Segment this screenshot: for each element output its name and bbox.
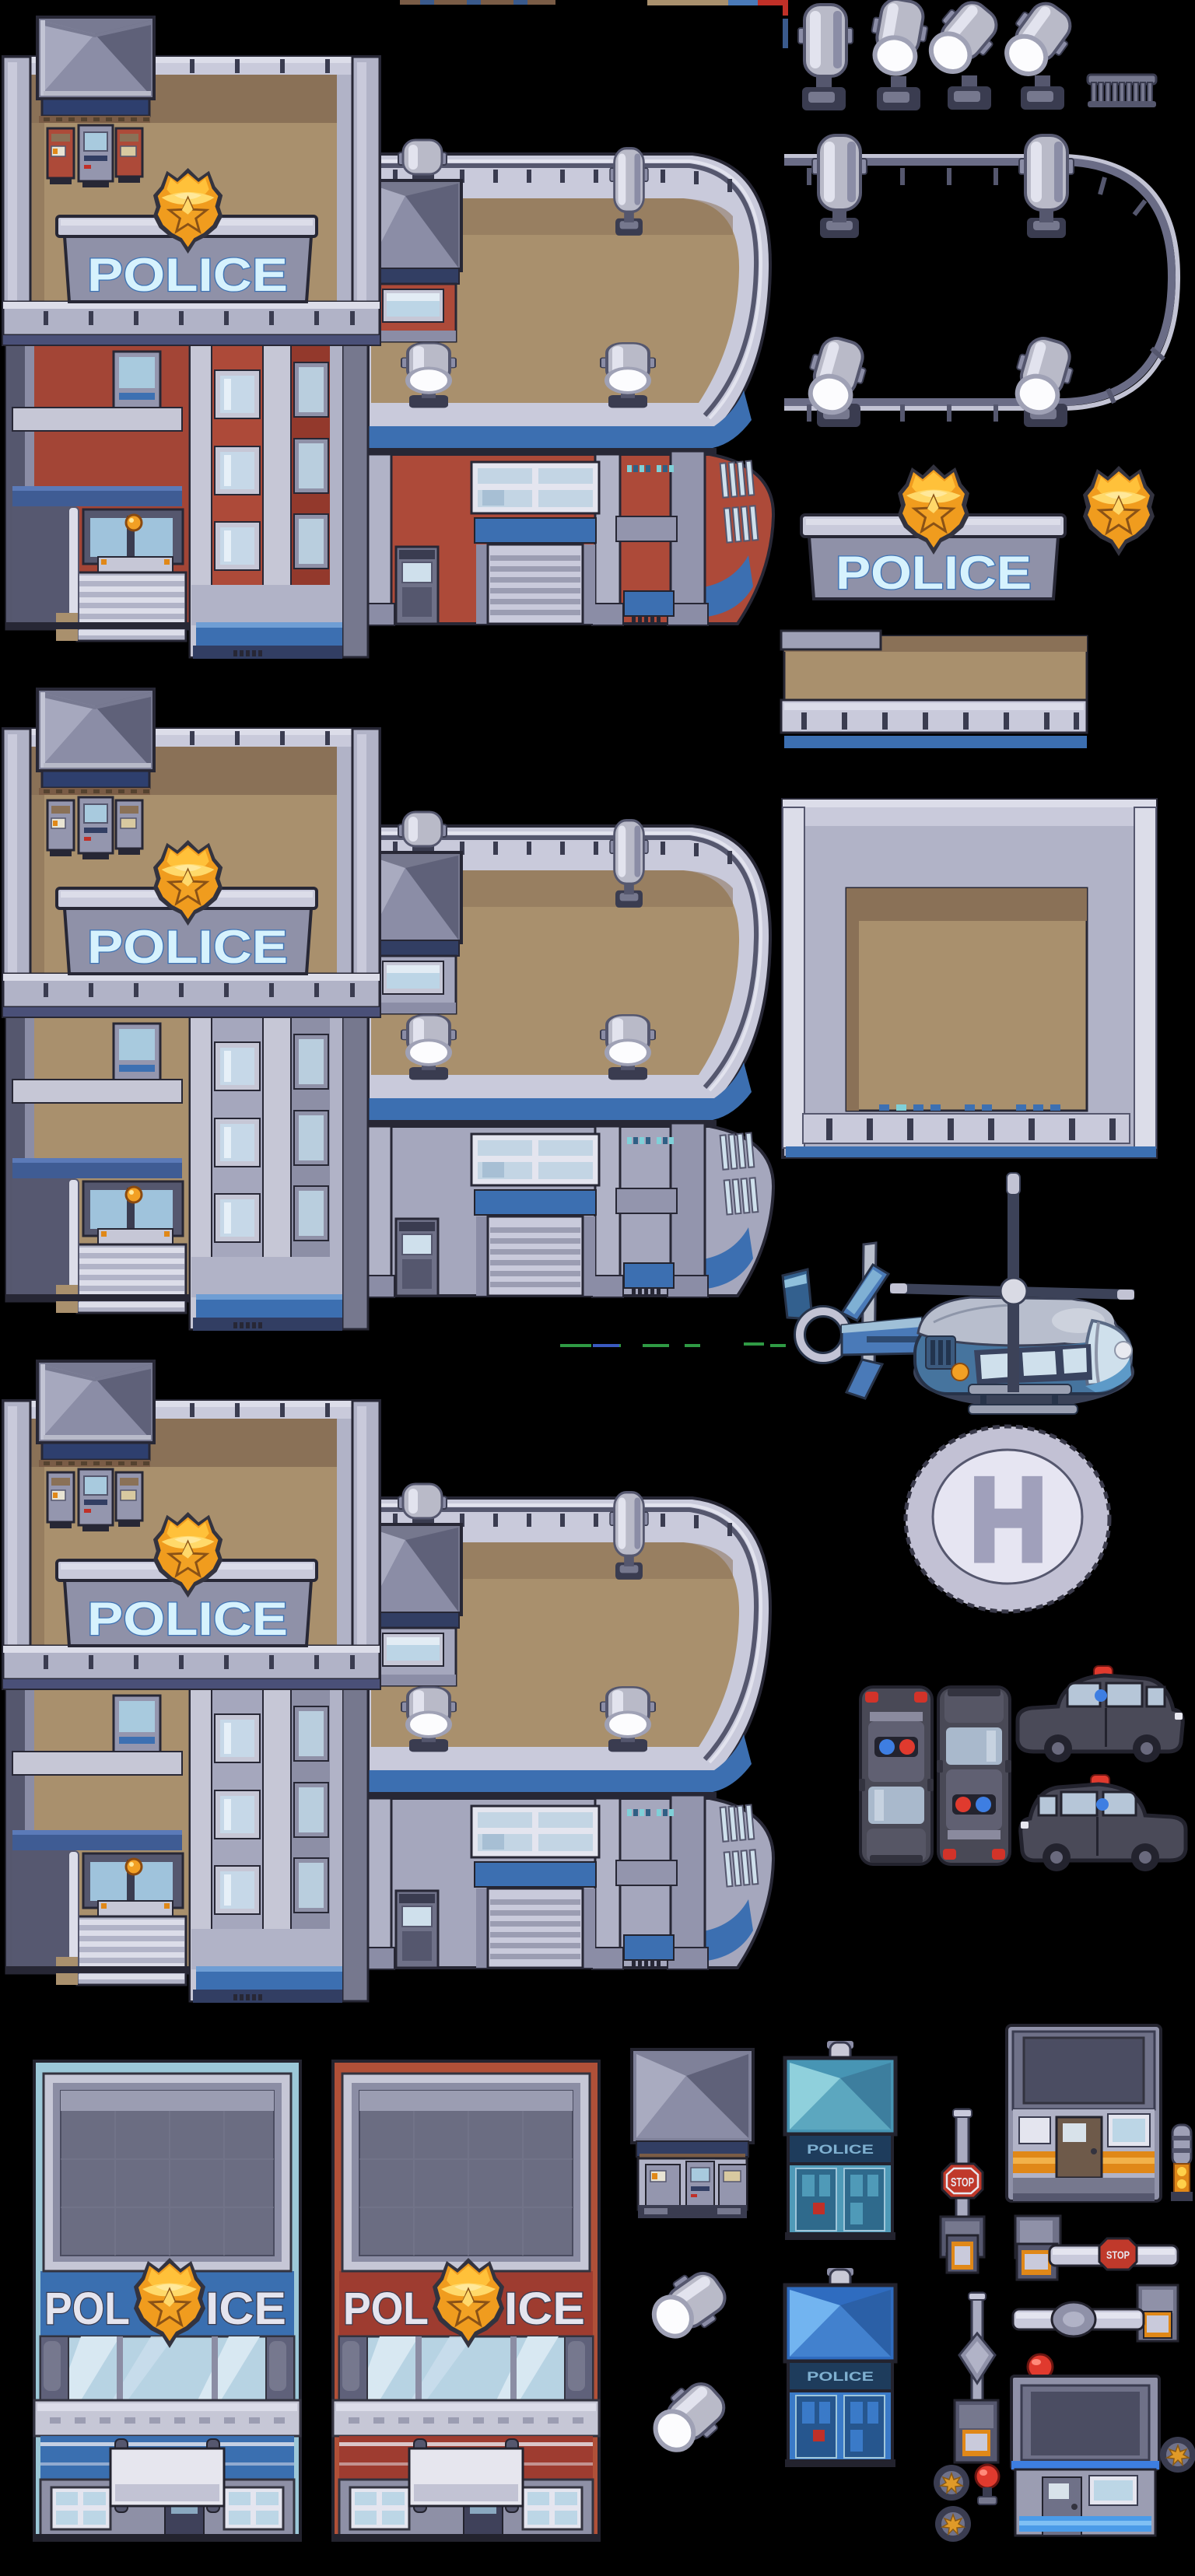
svg-text:POLICE: POLICE [836, 547, 1032, 599]
svg-text:H: H [969, 1454, 1047, 1586]
svg-text:STOP: STOP [1106, 2249, 1130, 2261]
svg-text:STOP: STOP [951, 2176, 974, 2189]
